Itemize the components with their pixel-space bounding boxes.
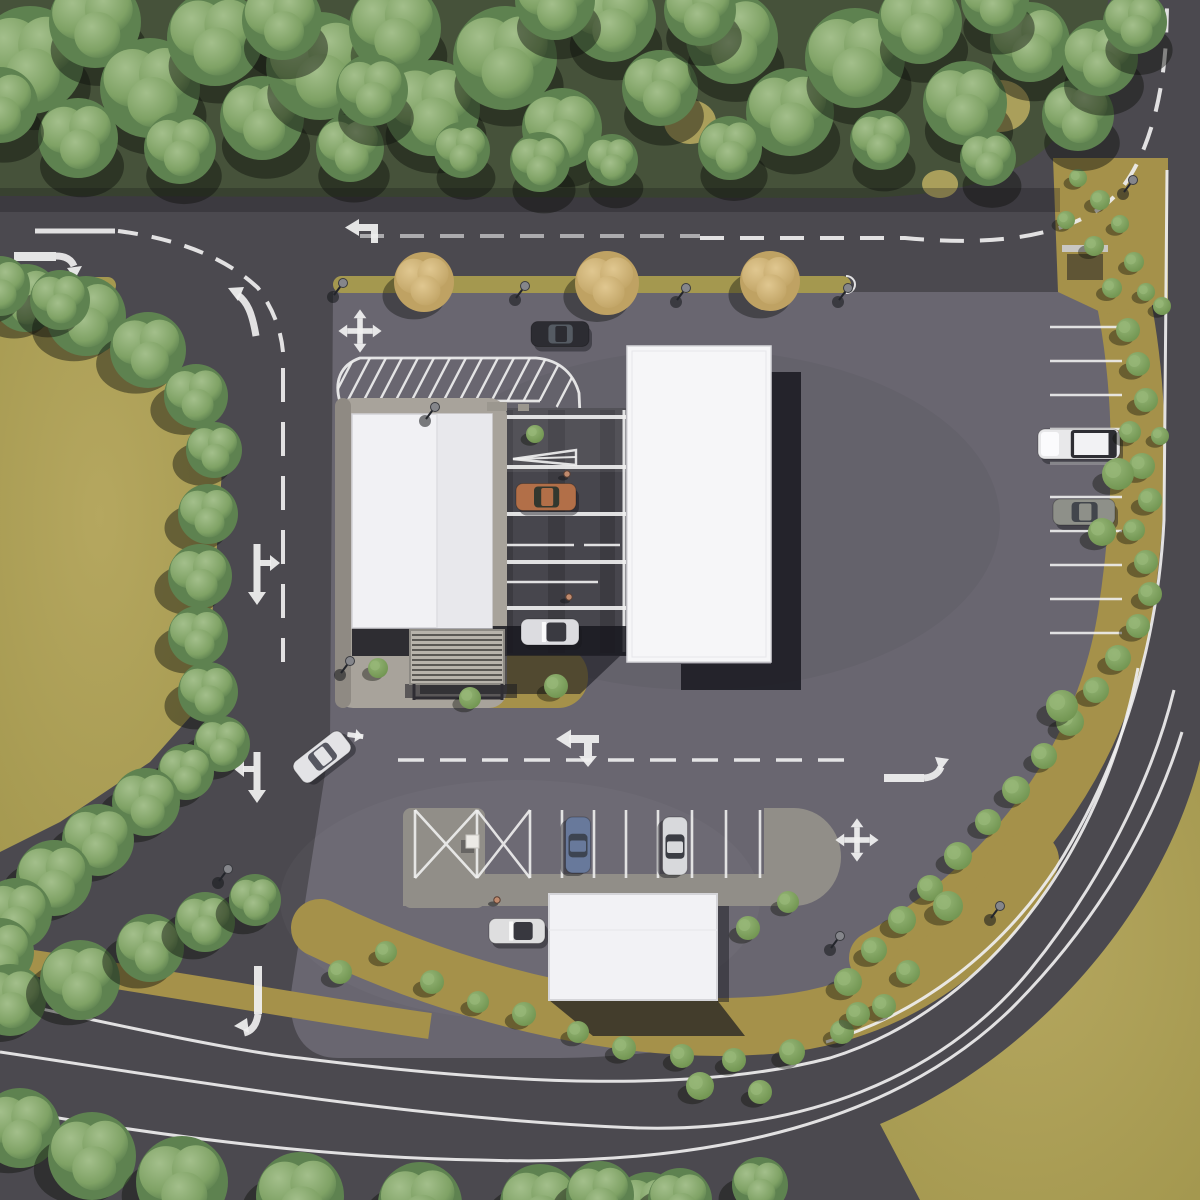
pole-base — [339, 279, 348, 288]
bush-highlight — [920, 878, 933, 891]
bush-highlight — [779, 894, 790, 905]
pedestrian-dot — [494, 897, 500, 903]
bush-highlight — [1091, 522, 1105, 536]
bush-highlight — [750, 1083, 762, 1095]
top-forest-belt — [0, 0, 1173, 213]
tree-lobe — [186, 569, 218, 601]
aerial-site-plan — [0, 0, 1200, 1200]
tree-lobe — [770, 102, 814, 146]
bush-highlight — [1113, 217, 1122, 226]
east-building — [627, 346, 801, 690]
tree-lobe — [193, 27, 241, 75]
tree-lobe — [482, 47, 534, 99]
pole-shadow — [327, 291, 339, 303]
bush-highlight — [947, 846, 961, 860]
bush-highlight — [672, 1047, 684, 1059]
pole-shadow — [419, 415, 431, 427]
bush-highlight — [1121, 424, 1132, 435]
bush-highlight — [377, 944, 388, 955]
tree-lobe — [975, 152, 1003, 180]
bush-highlight — [1059, 213, 1068, 222]
tree-lobe — [195, 685, 225, 715]
canopy-service-lanes — [492, 408, 626, 655]
tree-lobe — [867, 133, 897, 163]
bush-highlight — [782, 1042, 795, 1055]
windshield — [542, 622, 546, 642]
bush-highlight — [569, 1024, 580, 1035]
roof-vent-2 — [518, 404, 529, 411]
car-roof — [541, 488, 553, 506]
tree-lobe — [209, 738, 237, 766]
white-sedan-parked — [658, 817, 688, 878]
autumn-tree-lobe — [757, 274, 787, 304]
pole-base — [521, 282, 530, 291]
tree-lobe — [72, 1146, 116, 1190]
tree-lobe — [243, 894, 269, 920]
pole-shadow — [334, 669, 346, 681]
bush-highlight — [422, 973, 434, 985]
south-building-roof — [549, 894, 717, 1000]
south-building — [549, 894, 745, 1036]
bush-highlight — [874, 997, 886, 1009]
tree-lobe — [1121, 15, 1153, 47]
car-roof — [570, 841, 586, 852]
bush-highlight — [1092, 193, 1102, 203]
copper-coupe-lane — [516, 484, 579, 516]
tree-lobe — [74, 12, 120, 58]
pedestrian-dot — [564, 471, 570, 477]
tree-lobe — [195, 507, 225, 537]
car-roof — [555, 326, 567, 342]
autumn-tree-lobe — [593, 276, 625, 308]
car-roof — [1079, 504, 1091, 521]
windshield — [509, 922, 513, 941]
bush-highlight — [837, 972, 851, 986]
pole-base — [996, 902, 1005, 911]
pole-shadow — [832, 296, 844, 308]
pergola — [405, 630, 517, 700]
pole-base — [431, 403, 440, 412]
white-convertible-lane — [521, 619, 582, 650]
car-cabin — [514, 922, 533, 940]
tree-lobe — [946, 94, 988, 136]
tree-lobe — [201, 444, 229, 472]
pole-base — [1129, 176, 1138, 185]
tree-lobe — [356, 82, 392, 118]
bush-highlight — [978, 812, 991, 825]
bush-highlight — [1049, 694, 1065, 710]
pole-base — [836, 932, 845, 941]
bush-highlight — [1139, 285, 1148, 294]
car-roof — [667, 841, 683, 853]
tree-lobe — [449, 144, 477, 172]
tree-lobe — [182, 389, 214, 421]
tree-lobe — [833, 47, 883, 97]
bush-highlight — [1128, 617, 1140, 629]
tree-lobe — [901, 13, 943, 55]
bush-highlight — [514, 1005, 526, 1017]
bush-highlight — [330, 963, 342, 975]
tree-lobe — [47, 293, 77, 323]
bush-highlight — [1153, 429, 1162, 438]
pole-base — [346, 657, 355, 666]
bush-highlight — [614, 1039, 626, 1051]
tree-lobe — [600, 154, 626, 180]
bush-highlight — [1136, 391, 1148, 403]
tree-lobe — [2, 1119, 42, 1159]
bush-highlight — [1140, 491, 1152, 503]
bush-highlight — [1128, 355, 1140, 367]
pole-shadow — [212, 877, 224, 889]
tree-lobe — [60, 129, 100, 169]
pole-shadow — [1117, 188, 1129, 200]
bush-highlight — [936, 895, 951, 910]
site-plan-rendering — [0, 0, 1200, 1200]
tree-lobe — [684, 2, 720, 38]
pole-shadow — [509, 294, 521, 306]
bush-highlight — [891, 910, 905, 924]
bush-highlight — [738, 919, 750, 931]
bush-highlight — [1126, 255, 1136, 265]
bush-highlight — [1108, 648, 1121, 661]
bush-highlight — [724, 1051, 736, 1063]
bush-highlight — [1125, 522, 1136, 533]
bush-highlight — [1005, 780, 1019, 794]
blue-car-parked — [561, 817, 591, 876]
bush-highlight — [1086, 680, 1099, 693]
bush-highlight — [1132, 456, 1145, 469]
bush-highlight — [864, 940, 877, 953]
bush-highlight — [1034, 746, 1047, 759]
bush-highlight — [370, 661, 380, 671]
pole-base — [682, 284, 691, 293]
tree-lobe — [164, 140, 200, 176]
bush-highlight — [898, 963, 910, 975]
tree-lobe — [643, 80, 681, 118]
white-convertible-south — [489, 919, 548, 949]
tree-lobe — [185, 629, 215, 659]
bush-highlight — [1136, 553, 1148, 565]
roof-vent — [487, 402, 507, 411]
tree-lobe — [131, 795, 165, 829]
tree-lobe — [264, 11, 304, 51]
pole-base — [224, 865, 233, 874]
bush-highlight — [546, 677, 558, 689]
bush-highlight — [469, 994, 480, 1005]
bush-highlight — [1118, 321, 1130, 333]
bush-highlight — [1071, 171, 1080, 180]
car-cabin — [547, 623, 567, 642]
white-pickup-parked — [1038, 429, 1123, 464]
pole-shadow — [824, 944, 836, 956]
bush-highlight — [461, 690, 472, 701]
bush-highlight — [528, 427, 537, 436]
bush-highlight — [1155, 299, 1164, 308]
pole-shadow — [670, 296, 682, 308]
bush-highlight — [1104, 281, 1114, 291]
tree-lobe — [527, 155, 557, 185]
bush-highlight — [1105, 462, 1121, 478]
tree-lobe — [135, 941, 169, 975]
bush-highlight — [1140, 585, 1152, 597]
truck-cargo — [1074, 433, 1108, 455]
tree-lobe — [335, 141, 369, 175]
pedestrian-dot — [566, 594, 572, 600]
bush-highlight — [1086, 239, 1096, 249]
pole-base — [844, 284, 853, 293]
truck-cab — [1041, 432, 1059, 456]
dark-sedan-main-road — [531, 322, 592, 352]
tree-lobe — [131, 342, 169, 380]
east-building-roof — [627, 346, 771, 662]
tree-lobe — [62, 971, 102, 1011]
bush-highlight — [848, 1005, 860, 1017]
autumn-tree-lobe — [411, 275, 441, 305]
pole-shadow — [984, 914, 996, 926]
tree-lobe — [716, 141, 748, 173]
bush-highlight — [689, 1076, 703, 1090]
